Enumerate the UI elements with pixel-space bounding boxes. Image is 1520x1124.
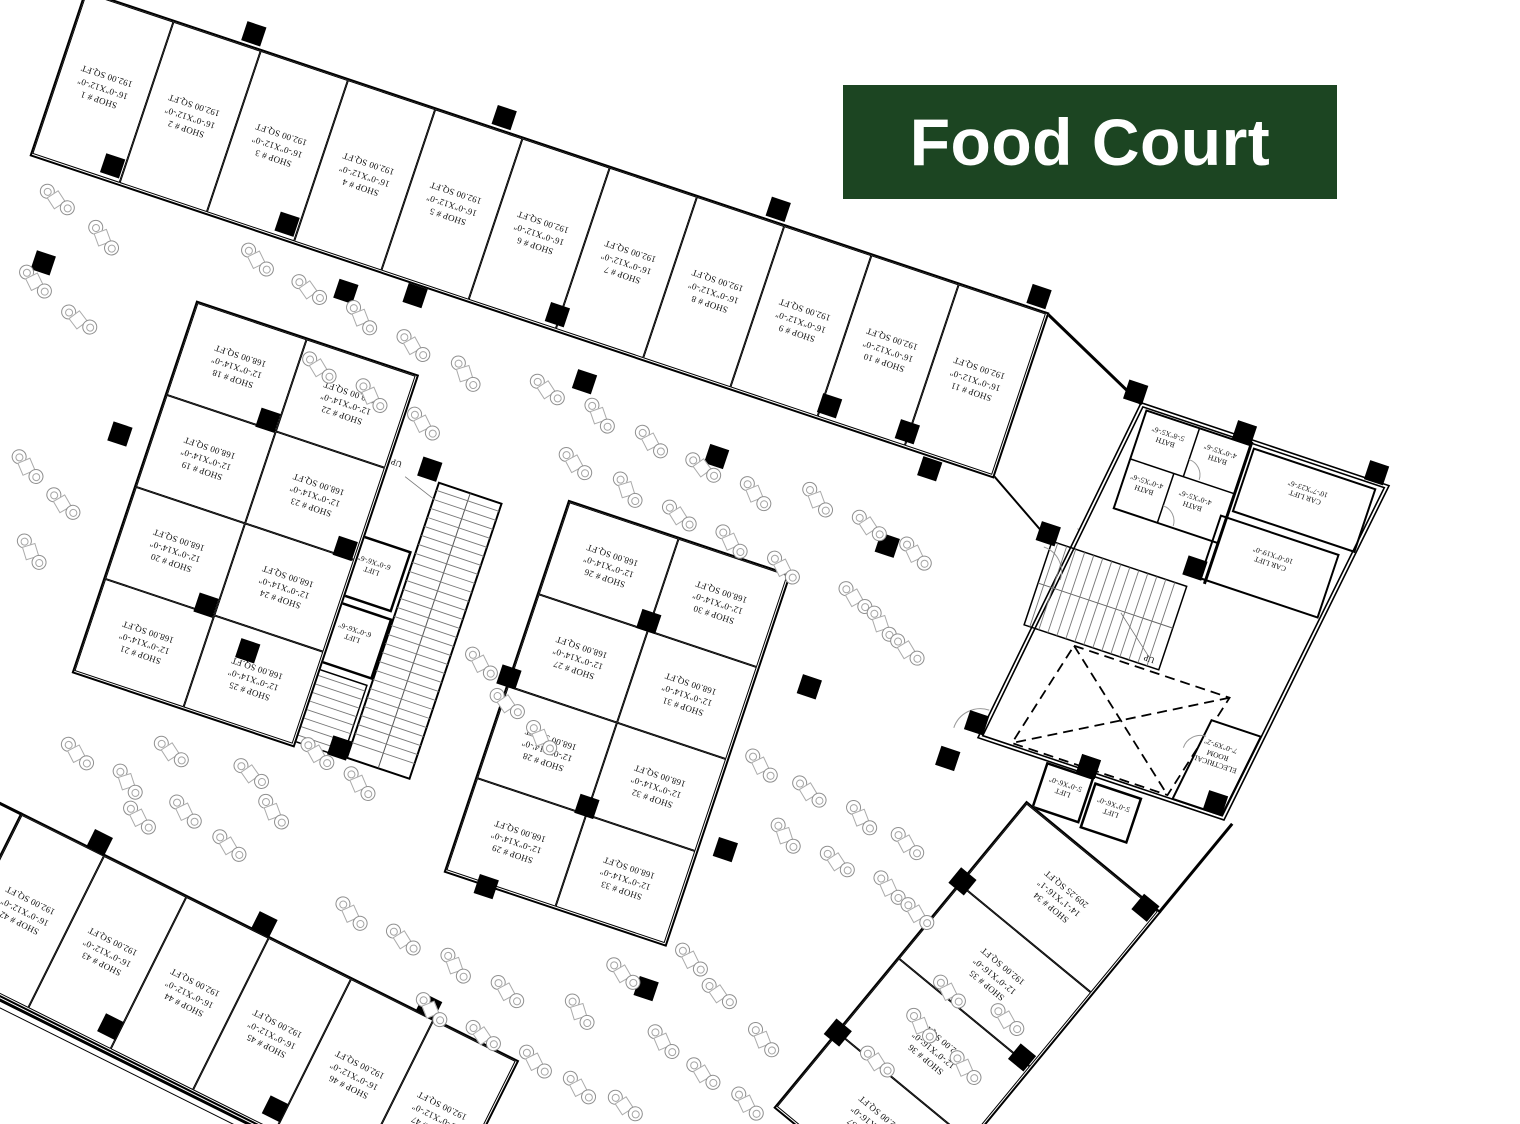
- dining-table-icon: [58, 305, 99, 336]
- banner-title: Food Court: [910, 104, 1271, 180]
- food-court-banner: Food Court: [843, 85, 1337, 199]
- floor-plan-page: SHOP # 116'-0"X12'-0"192.00 SQ.FTSHOP # …: [0, 0, 1520, 1124]
